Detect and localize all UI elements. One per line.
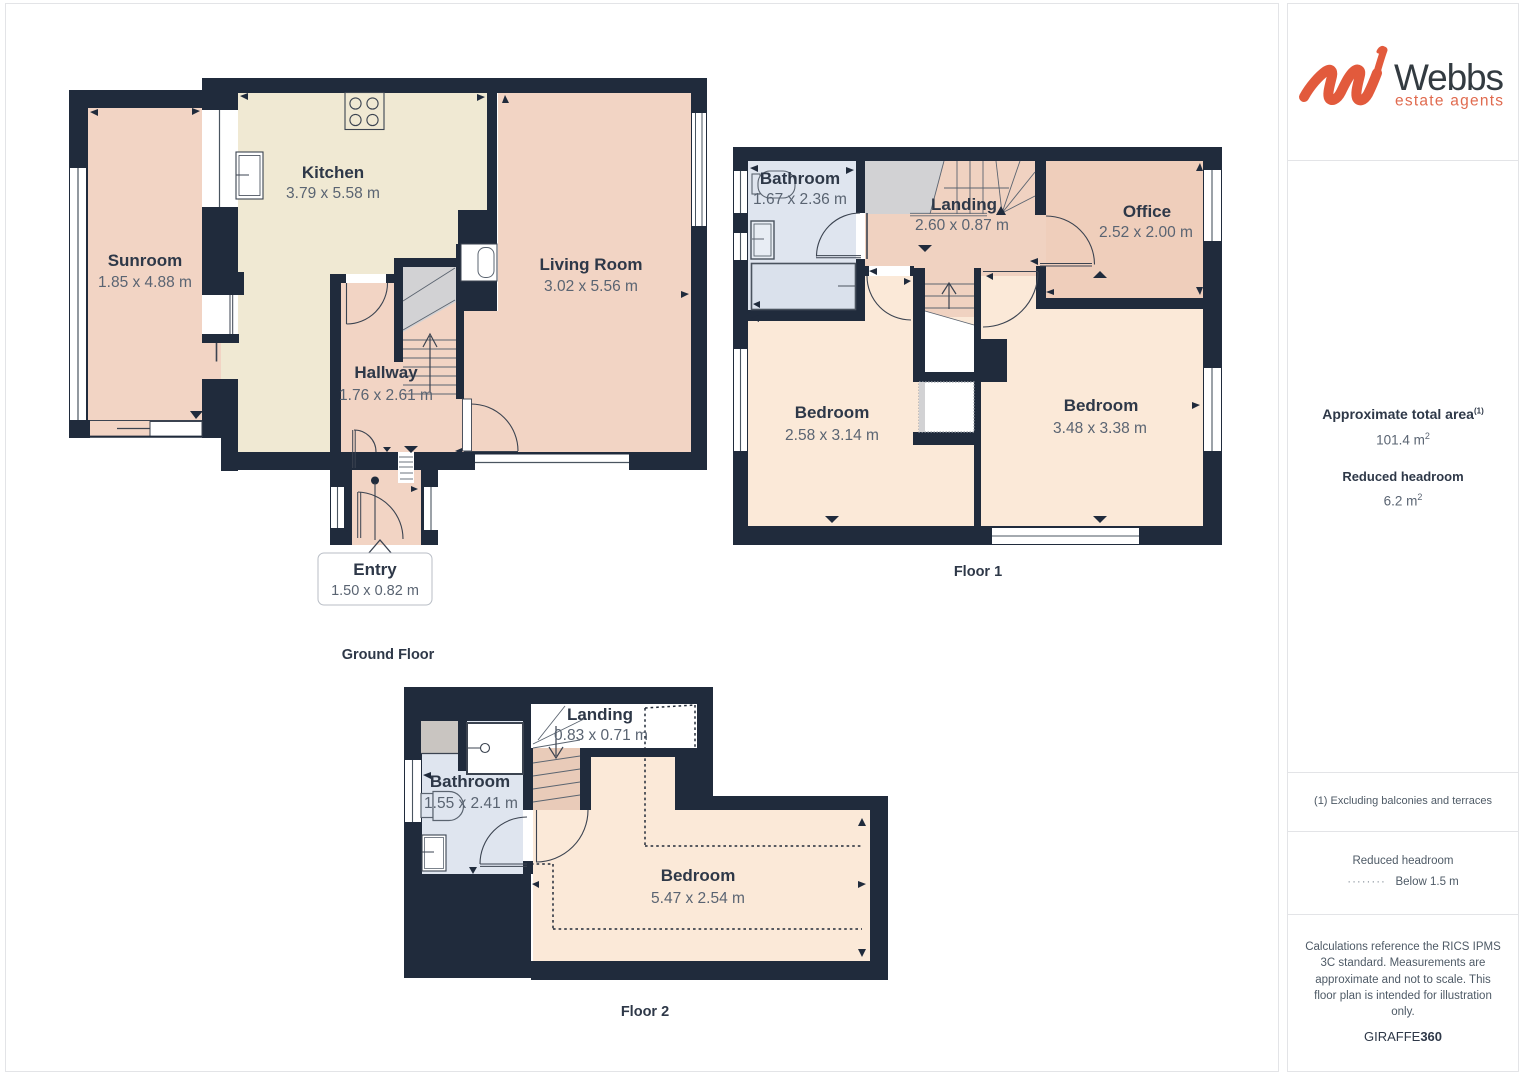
- svg-text:Bathroom: Bathroom: [430, 772, 510, 791]
- svg-text:Landing: Landing: [567, 705, 633, 724]
- svg-text:Living Room: Living Room: [540, 255, 643, 274]
- svg-text:Bedroom: Bedroom: [1064, 396, 1139, 415]
- svg-text:Kitchen: Kitchen: [302, 163, 364, 182]
- svg-text:1.76 x 2.61 m: 1.76 x 2.61 m: [339, 387, 433, 404]
- svg-text:Office: Office: [1123, 202, 1171, 221]
- svg-text:5.47 x 2.54 m: 5.47 x 2.54 m: [651, 890, 745, 907]
- svg-text:1.67 x 2.36 m: 1.67 x 2.36 m: [753, 191, 847, 208]
- svg-text:Bedroom: Bedroom: [795, 403, 870, 422]
- svg-text:Floor 2: Floor 2: [621, 1004, 669, 1020]
- svg-text:Hallway: Hallway: [354, 363, 418, 382]
- svg-text:3.48 x 3.38 m: 3.48 x 3.38 m: [1053, 420, 1147, 437]
- svg-text:Bathroom: Bathroom: [760, 169, 840, 188]
- svg-text:1.55 x 2.41 m: 1.55 x 2.41 m: [424, 795, 518, 812]
- svg-text:Landing: Landing: [931, 195, 997, 214]
- svg-text:2.60 x 0.87 m: 2.60 x 0.87 m: [915, 217, 1009, 234]
- svg-text:Entry: Entry: [353, 560, 397, 579]
- svg-text:1.85 x 4.88 m: 1.85 x 4.88 m: [98, 274, 192, 291]
- svg-text:2.58 x 3.14 m: 2.58 x 3.14 m: [785, 427, 879, 444]
- svg-text:Sunroom: Sunroom: [108, 251, 183, 270]
- svg-text:1.50 x 0.82 m: 1.50 x 0.82 m: [331, 583, 419, 599]
- svg-text:Bedroom: Bedroom: [661, 866, 736, 885]
- svg-text:2.52 x 2.00 m: 2.52 x 2.00 m: [1099, 224, 1193, 241]
- svg-text:0.83 x 0.71 m: 0.83 x 0.71 m: [554, 727, 648, 744]
- svg-text:Ground Floor: Ground Floor: [342, 647, 435, 663]
- svg-text:Floor 1: Floor 1: [954, 564, 1002, 580]
- svg-text:3.02 x 5.56 m: 3.02 x 5.56 m: [544, 278, 638, 295]
- svg-text:3.79 x 5.58 m: 3.79 x 5.58 m: [286, 185, 380, 202]
